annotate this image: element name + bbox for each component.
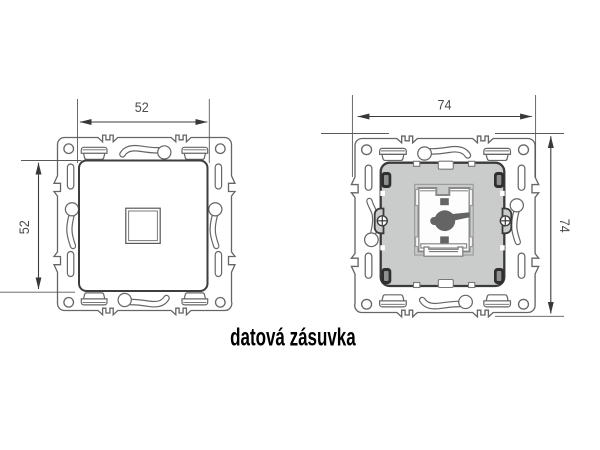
- svg-text:74: 74: [557, 219, 573, 233]
- svg-text:52: 52: [16, 220, 32, 234]
- svg-text:74: 74: [438, 97, 452, 113]
- svg-text:52: 52: [135, 99, 149, 115]
- svg-text:datová zásuvka: datová zásuvka: [230, 324, 356, 351]
